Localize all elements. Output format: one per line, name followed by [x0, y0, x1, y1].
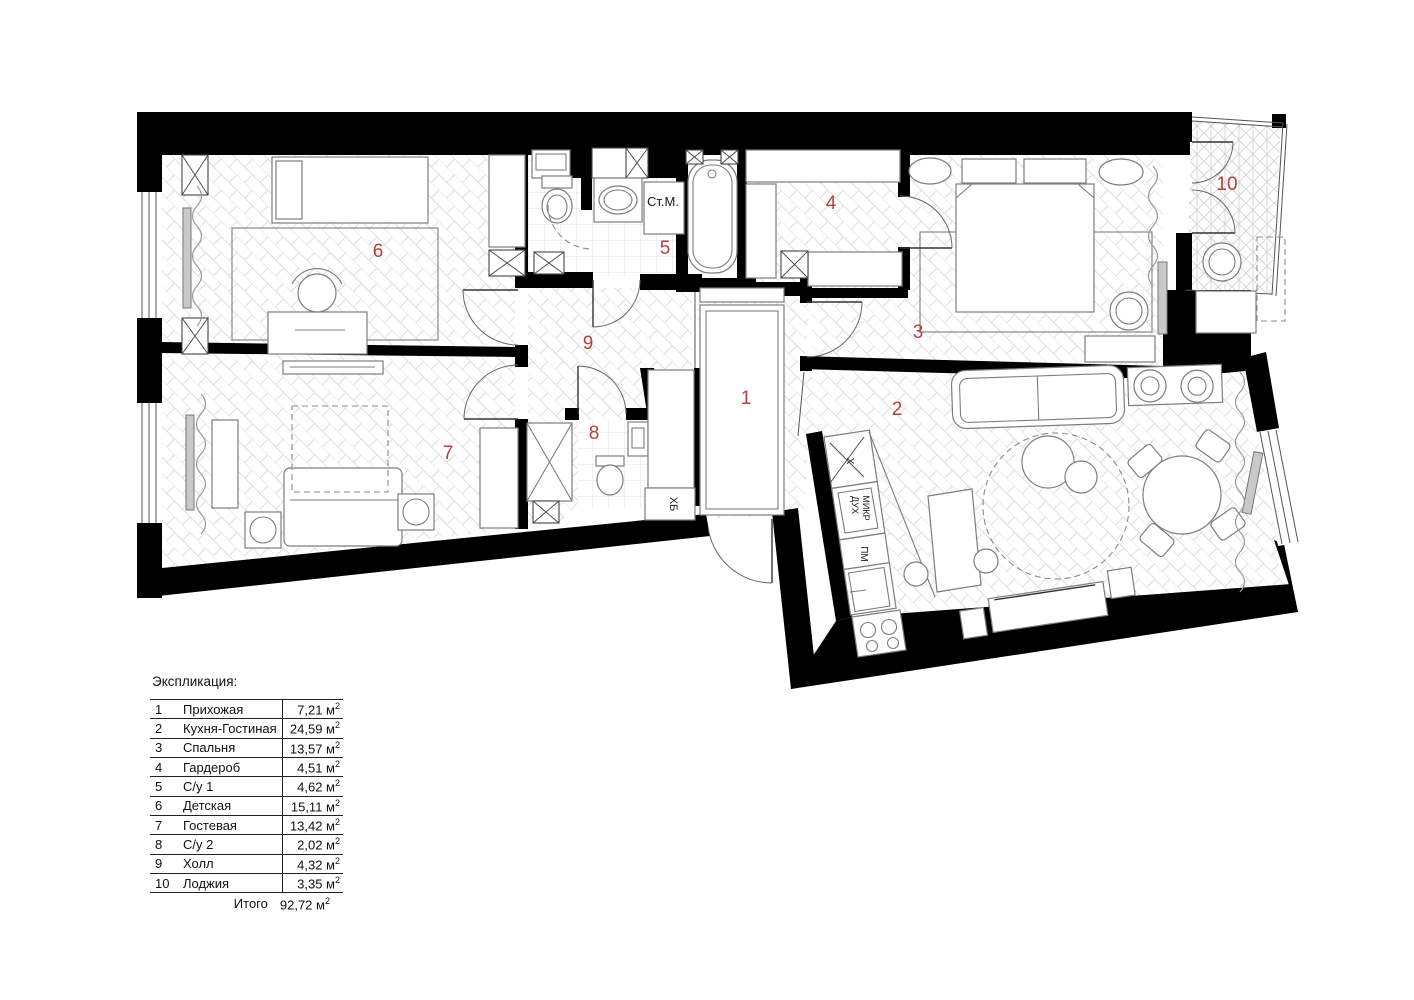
- plan-annotation: ХБ: [667, 497, 679, 512]
- plan-annotation: Х: [844, 458, 855, 465]
- legend-row-area: 13,57 м2: [283, 738, 344, 757]
- bed-double: [956, 184, 1094, 312]
- room-number-6: 6: [373, 241, 384, 262]
- legend-row-area: 13,42 м2: [283, 815, 344, 834]
- coffee-table: [1065, 461, 1097, 493]
- legend-row-area: 4,62 м2: [283, 777, 344, 796]
- bar-stool: [974, 549, 998, 573]
- radiator: [186, 415, 194, 510]
- round-stool: [1181, 370, 1214, 403]
- pillow: [276, 161, 302, 219]
- legend-row: 2Кухня-Гостиная24,59 м2: [150, 719, 343, 738]
- legend-row-number: 9: [150, 854, 180, 873]
- legend-table: 1Прихожая7,21 м22Кухня-Гостиная24,59 м23…: [150, 699, 343, 893]
- room-number-3: 3: [913, 322, 924, 343]
- legend: Экспликация: 1Прихожая7,21 м22Кухня-Гост…: [150, 674, 343, 913]
- room-number-2: 2: [892, 399, 903, 420]
- room-number-8: 8: [589, 423, 600, 444]
- legend-title: Экспликация:: [152, 674, 343, 689]
- radiator: [183, 208, 191, 308]
- floor-plan-page: 12345678910Ст.М.ХБХДУХМИКРПМ Экспликация…: [0, 0, 1414, 1000]
- bathtub: [688, 160, 737, 273]
- legend-row-area: 4,51 м2: [283, 757, 344, 776]
- toilet-wc: [597, 465, 623, 495]
- desk: [268, 312, 367, 354]
- sofa-bed: [284, 468, 402, 546]
- room-number-7: 7: [443, 443, 454, 464]
- legend-row-name: Спальня: [180, 738, 283, 757]
- wardrobe-rack: [746, 184, 776, 278]
- side-cabinet: [212, 420, 238, 508]
- legend-row: 10Лоджия3,35 м2: [150, 873, 343, 892]
- stove: [852, 610, 906, 657]
- linen-closet: [648, 370, 694, 488]
- legend-row-name: С/у 2: [180, 835, 283, 854]
- dresser: [1085, 336, 1155, 362]
- legend-row-number: 4: [150, 757, 180, 776]
- legend-total-label: Итого: [234, 896, 268, 912]
- legend-row-name: Детская: [180, 796, 283, 815]
- legend-row-area: 24,59 м2: [283, 719, 344, 738]
- legend-total-value: 92,72 м2: [280, 896, 330, 912]
- legend-row-name: Гостевая: [180, 815, 283, 834]
- legend-row-name: Кухня-Гостиная: [180, 719, 283, 738]
- bedside-pouf: [1099, 159, 1143, 185]
- desk-chair: [298, 274, 336, 312]
- toilet-tank: [542, 176, 572, 188]
- room-number-1: 1: [741, 388, 752, 409]
- legend-row-area: 7,21 м2: [283, 700, 344, 719]
- legend-row-number: 2: [150, 719, 180, 738]
- door-mat: [700, 288, 784, 302]
- legend-row-name: Гардероб: [180, 757, 283, 776]
- legend-row-name: С/у 1: [180, 777, 283, 796]
- plan-annotation: Ст.М.: [647, 194, 679, 209]
- pillow: [1024, 159, 1086, 183]
- wardrobe-rack: [746, 150, 900, 182]
- bar-stool: [904, 562, 928, 586]
- legend-row-number: 5: [150, 777, 180, 796]
- legend-row-area: 2,02 м2: [283, 835, 344, 854]
- legend-row: 5С/у 14,62 м2: [150, 777, 343, 796]
- room-number-9: 9: [583, 333, 594, 354]
- legend-row: 3Спальня13,57 м2: [150, 738, 343, 757]
- radiator: [1158, 262, 1167, 334]
- kitchen-peninsula: [928, 489, 981, 592]
- wardrobe-rack: [808, 252, 902, 286]
- sink-wc: [628, 422, 648, 456]
- room-number-10: 10: [1216, 174, 1237, 195]
- hall-rug: [700, 305, 784, 515]
- legend-row-name: Лоджия: [180, 873, 283, 892]
- legend-row-name: Прихожая: [180, 700, 283, 719]
- legend-row-area: 3,35 м2: [283, 873, 344, 892]
- legend-row-area: 4,32 м2: [283, 854, 344, 873]
- loggia-cabinet: [1196, 291, 1256, 333]
- legend-total: Итого 92,72 м2: [150, 896, 330, 912]
- legend-row-number: 1: [150, 700, 180, 719]
- legend-row-number: 6: [150, 796, 180, 815]
- plan-annotation: ПМ: [858, 546, 869, 562]
- legend-row-number: 10: [150, 873, 180, 892]
- bedside-pouf: [909, 158, 951, 184]
- legend-row-name: Холл: [180, 854, 283, 873]
- legend-row: 1Прихожая7,21 м2: [150, 700, 343, 719]
- room-number-4: 4: [826, 193, 837, 214]
- legend-row-number: 8: [150, 835, 180, 854]
- legend-row: 6Детская15,11 м2: [150, 796, 343, 815]
- legend-row: 7Гостевая13,42 м2: [150, 815, 343, 834]
- legend-row-area: 15,11 м2: [283, 796, 344, 815]
- room-number-5: 5: [660, 238, 671, 259]
- pillow: [962, 159, 1016, 183]
- legend-row: 9Холл4,32 м2: [150, 854, 343, 873]
- legend-row-number: 3: [150, 738, 180, 757]
- legend-row-number: 7: [150, 815, 180, 834]
- plan-annotation: МИКР: [861, 495, 871, 520]
- legend-row: 4Гардероб4,51 м2: [150, 757, 343, 776]
- legend-row: 8С/у 22,02 м2: [150, 835, 343, 854]
- round-stool: [1133, 369, 1166, 402]
- plan-annotation: ДУХ: [850, 496, 860, 514]
- wardrobe-children: [489, 155, 525, 247]
- wardrobe-guest: [480, 428, 518, 528]
